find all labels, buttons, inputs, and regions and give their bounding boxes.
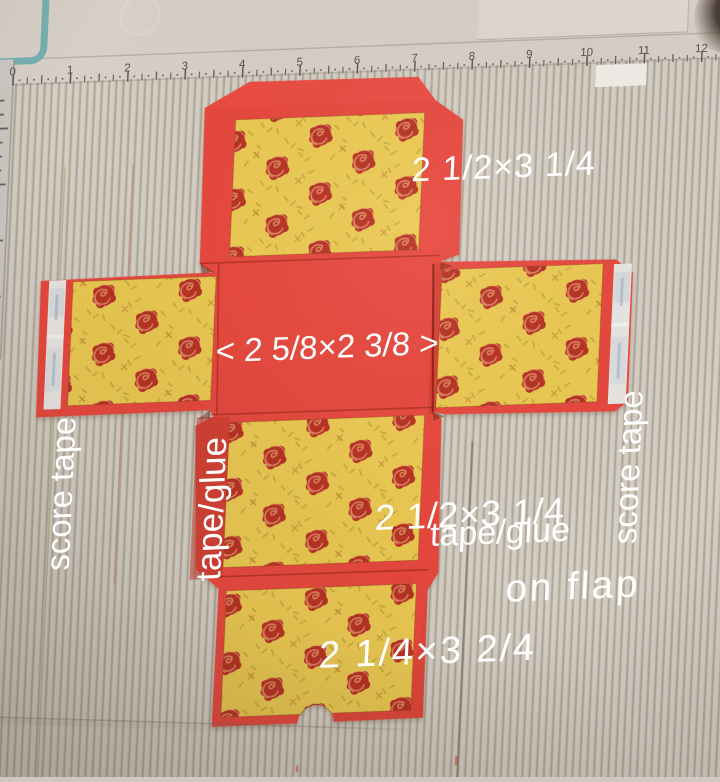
svg-text:tape/glue: tape/glue (429, 511, 571, 554)
svg-text:tape/glue: tape/glue (189, 436, 234, 581)
svg-text:score tape: score tape (606, 390, 650, 545)
svg-text:on flap: on flap (505, 563, 641, 611)
svg-text:2 1/2×3 1/4: 2 1/2×3 1/4 (411, 144, 597, 189)
svg-text:2 1/4×3 2/4: 2 1/4×3 2/4 (318, 627, 537, 677)
svg-text:score tape: score tape (39, 416, 83, 571)
